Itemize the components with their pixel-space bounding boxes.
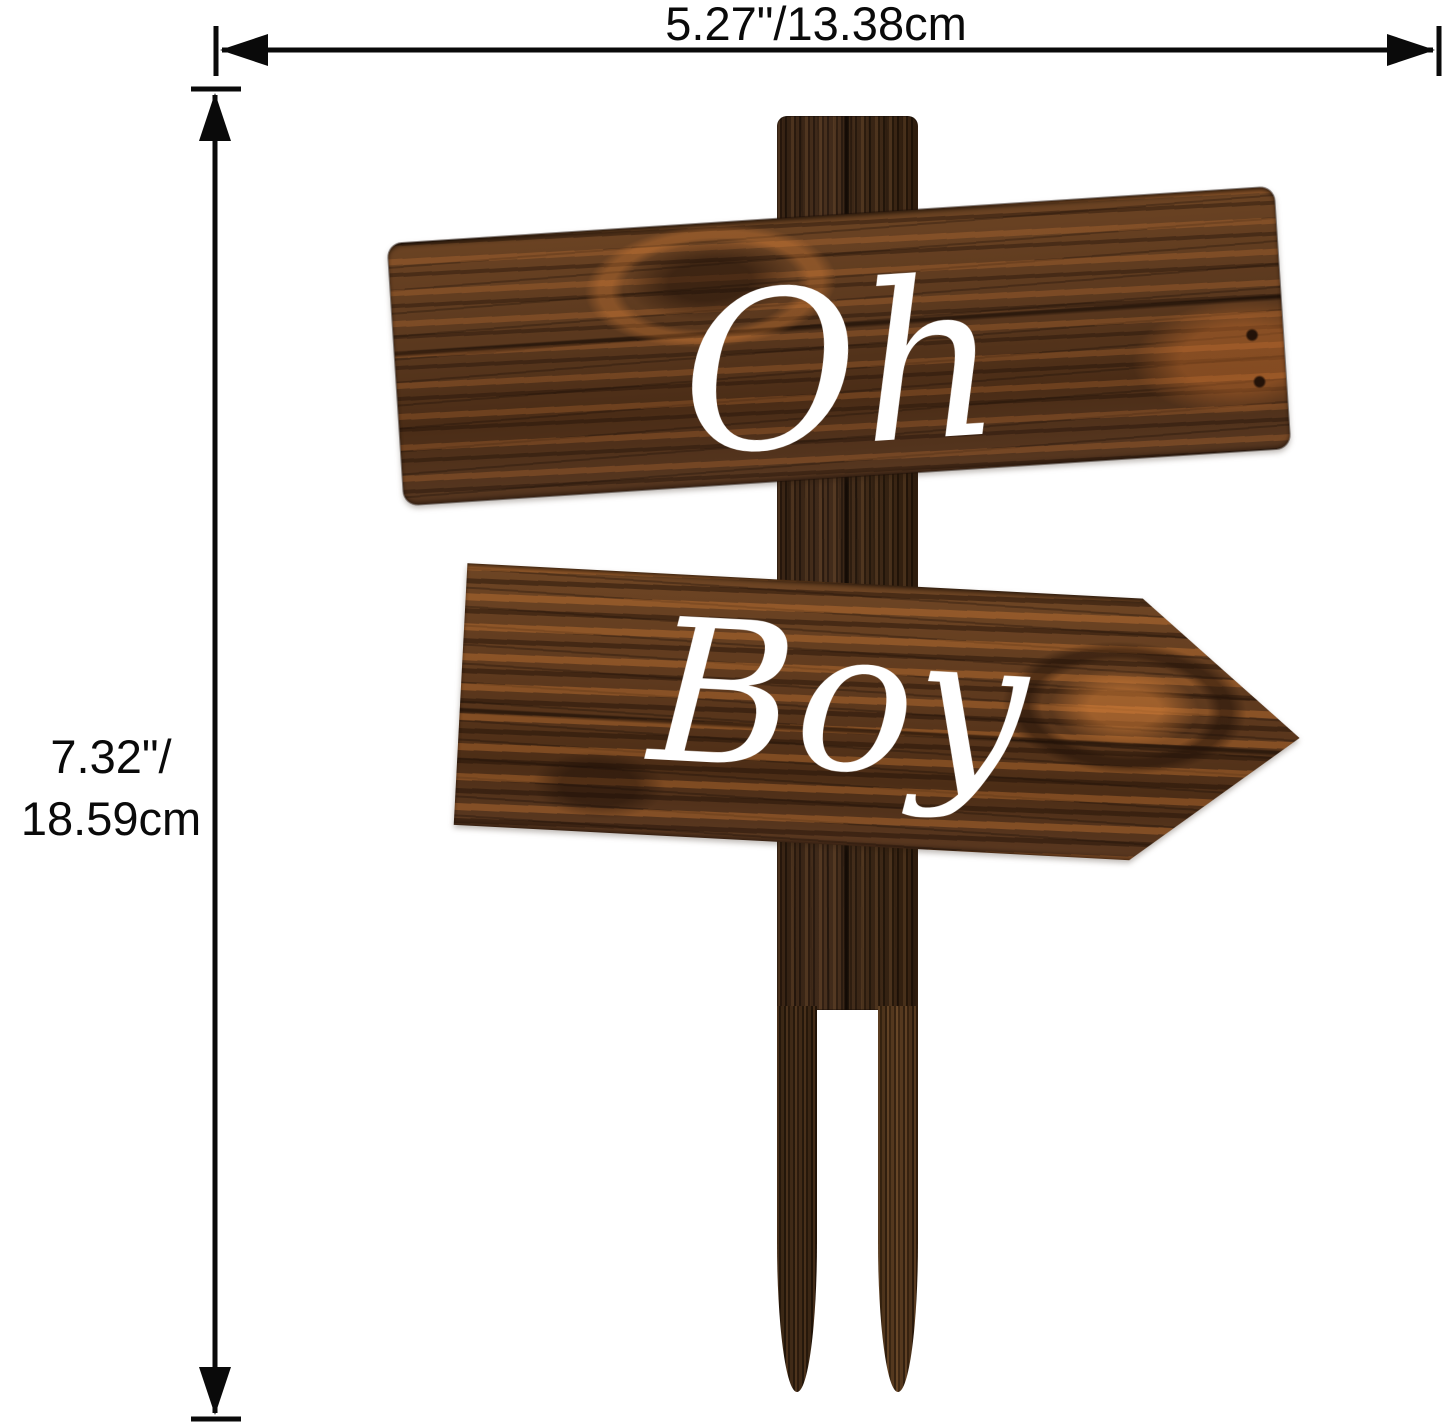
- bottom-sign-board-wrap: Boy: [454, 563, 1307, 869]
- bottom-board-text-svg: Boy: [454, 563, 1307, 869]
- bottom-sign-board: Boy: [454, 563, 1307, 869]
- height-label-line1: 7.32"/: [14, 726, 208, 788]
- top-board-text-svg: Oh: [387, 187, 1290, 506]
- bottom-board-script-text: Boy: [642, 575, 1035, 826]
- arrowhead-right-icon: [1387, 34, 1435, 66]
- height-dimension-label: 7.32"/ 18.59cm: [14, 726, 208, 850]
- post-left-prong: [777, 1006, 817, 1392]
- width-dimension-label: 5.27"/13.38cm: [616, 0, 1016, 47]
- arrowhead-up-icon: [199, 93, 231, 141]
- top-board-script-text: Oh: [673, 232, 1008, 505]
- product-dimension-diagram: Oh Boy 5.27"/13.38cm 7.32"/: [0, 0, 1445, 1425]
- height-label-line2: 18.59cm: [14, 788, 208, 850]
- arrowhead-left-icon: [220, 34, 268, 66]
- arrowhead-down-icon: [199, 1367, 231, 1415]
- post-right-prong: [878, 1006, 918, 1392]
- top-sign-board: Oh: [387, 187, 1290, 506]
